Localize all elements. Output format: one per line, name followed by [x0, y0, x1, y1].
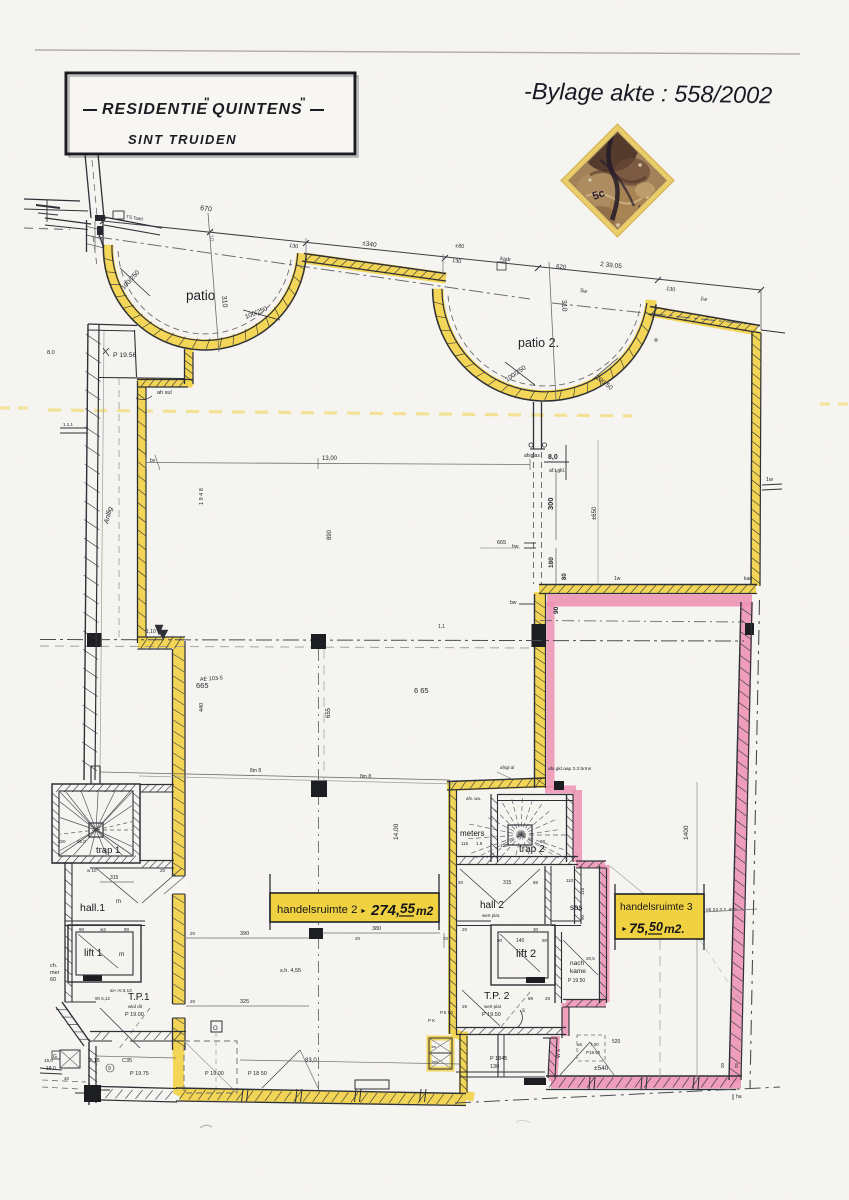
svg-text:18,0: 18,0	[46, 1066, 56, 1072]
svg-text:afs.gkl.aap 3.3 brms: afs.gkl.aap 3.3 brms	[548, 766, 592, 772]
svg-text:110: 110	[566, 878, 574, 883]
svg-text:nach: nach	[570, 960, 584, 967]
svg-text:P 19.00: P 19.00	[125, 1012, 144, 1018]
svg-text:P 19.56: P 19.56	[113, 352, 137, 359]
svg-text:88: 88	[533, 880, 539, 885]
svg-text:bw: bw	[510, 600, 517, 606]
svg-text:ch.: ch.	[50, 963, 58, 969]
svg-text:hall 2: hall 2	[480, 900, 504, 911]
svg-text:670: 670	[200, 205, 213, 213]
svg-text:": "	[204, 95, 210, 109]
svg-text:QUINTENS: QUINTENS	[212, 101, 303, 118]
svg-text:P 19.75: P 19.75	[130, 1071, 149, 1077]
svg-text:": "	[300, 95, 306, 109]
svg-text:8,0: 8,0	[548, 454, 558, 461]
svg-text:50: 50	[649, 920, 663, 934]
svg-text:75,: 75,	[629, 920, 648, 936]
svg-text:110: 110	[580, 887, 585, 895]
svg-text:8.0: 8.0	[47, 350, 55, 356]
svg-text:P 19.00: P 19.00	[205, 1071, 224, 1077]
svg-text:6 65: 6 65	[414, 686, 429, 695]
svg-text:655: 655	[326, 707, 332, 718]
svg-text:trap 1: trap 1	[96, 845, 120, 856]
svg-text:1w: 1w	[614, 576, 621, 582]
svg-text:1w: 1w	[431, 1044, 436, 1049]
svg-text:180: 180	[548, 557, 555, 568]
svg-text:300: 300	[546, 497, 555, 510]
svg-text:at+ At 5,13: at+ At 5,13	[110, 988, 132, 993]
svg-text:380: 380	[372, 926, 381, 932]
svg-text:handelsruimte 3: handelsruimte 3	[620, 902, 693, 913]
svg-text:14,00: 14,00	[393, 823, 400, 840]
svg-text:310: 310	[560, 300, 568, 312]
svg-text:mer: mer	[50, 970, 60, 976]
svg-text:115: 115	[461, 841, 469, 846]
svg-text:T.P.1: T.P.1	[128, 992, 150, 1003]
svg-text:19,0: 19,0	[44, 1058, 53, 1063]
svg-text:1.5: 1.5	[476, 841, 483, 846]
svg-text:O: O	[213, 1026, 218, 1032]
svg-text:SINT TRUIDEN: SINT TRUIDEN	[128, 132, 237, 147]
svg-text:20: 20	[190, 999, 196, 1004]
svg-text:d2.0: d2.0	[77, 839, 86, 844]
svg-text:P 19.50: P 19.50	[482, 1012, 501, 1018]
svg-text:bw: bw	[512, 544, 519, 550]
svg-text:±540: ±540	[594, 1065, 609, 1072]
svg-text:1,10: 1,10	[146, 629, 156, 635]
svg-text:325: 325	[240, 999, 249, 1005]
svg-text:89: 89	[528, 996, 534, 1001]
svg-text:40: 40	[64, 1076, 70, 1081]
svg-text:af.t.gkl.: af.t.gkl.	[549, 468, 565, 474]
svg-text:T.P. 2: T.P. 2	[484, 990, 510, 1002]
svg-text:8m 8: 8m 8	[250, 768, 261, 774]
svg-text:20,5: 20,5	[586, 956, 595, 961]
svg-text:890: 890	[327, 529, 333, 540]
svg-text:90: 90	[124, 927, 130, 932]
svg-text:G: G	[53, 1054, 57, 1060]
svg-text:80: 80	[562, 573, 568, 580]
svg-text:38: 38	[540, 839, 546, 844]
svg-text:20: 20	[355, 936, 361, 941]
svg-text:meters: meters	[460, 829, 484, 838]
svg-text:C35: C35	[122, 1058, 132, 1064]
svg-text:665: 665	[497, 540, 506, 546]
svg-text:20: 20	[462, 927, 468, 932]
svg-text:90: 90	[497, 938, 503, 943]
svg-text:310: 310	[220, 296, 228, 308]
svg-text:1w: 1w	[700, 296, 708, 303]
svg-text:315: 315	[110, 875, 119, 881]
svg-text:90: 90	[542, 938, 548, 943]
svg-text:ha: ha	[736, 1094, 742, 1100]
svg-text:handelsruimte 2: handelsruimte 2	[277, 904, 357, 916]
svg-text:20: 20	[458, 880, 464, 885]
svg-text:520: 520	[612, 1039, 621, 1045]
svg-text:P K: P K	[428, 1018, 435, 1023]
svg-text:P19.50: P19.50	[586, 1050, 601, 1055]
svg-text:1 9 4 8: 1 9 4 8	[199, 488, 205, 505]
svg-text:afsglas: afsglas	[524, 453, 540, 459]
svg-text:trap 2: trap 2	[519, 844, 545, 855]
svg-text:►: ►	[360, 908, 367, 915]
svg-text:ah sul: ah sul	[157, 390, 172, 396]
svg-text:620: 620	[556, 264, 567, 271]
svg-text:1w5: 1w5	[431, 1059, 439, 1064]
svg-text:wkd dit: wkd dit	[128, 1004, 143, 1009]
svg-text:274,: 274,	[370, 902, 400, 919]
svg-text:kame: kame	[570, 968, 586, 975]
svg-text:440: 440	[199, 703, 205, 712]
svg-text:8m 8: 8m 8	[360, 774, 371, 780]
svg-text:9: 9	[108, 1066, 111, 1072]
svg-text:afsgl al: afsgl al	[500, 765, 514, 770]
svg-text:±650: ±650	[592, 506, 598, 520]
svg-text:hall.1: hall.1	[80, 902, 105, 914]
svg-text:lift 1: lift 1	[84, 948, 103, 959]
svg-text:P.K 50: P.K 50	[440, 1010, 453, 1015]
svg-text:-Bylage akte : 558/2002: -Bylage akte : 558/2002	[524, 78, 773, 108]
svg-text:315: 315	[503, 880, 512, 886]
svg-text:3,10: 3,10	[207, 230, 214, 243]
svg-text:1w: 1w	[766, 477, 773, 483]
svg-text:90: 90	[553, 606, 560, 614]
svg-text:P 18 50: P 18 50	[248, 1071, 267, 1077]
svg-text:m: m	[119, 951, 124, 958]
svg-text:90: 90	[79, 927, 85, 932]
svg-text:9h 5,12: 9h 5,12	[95, 996, 111, 1001]
svg-text:20: 20	[190, 931, 196, 936]
svg-text:1.1.1: 1.1.1	[63, 422, 74, 427]
svg-text:W 5: W 5	[556, 1049, 562, 1058]
svg-text:m2.: m2.	[664, 922, 685, 936]
svg-text:patio: patio	[186, 288, 215, 303]
svg-text:lift 2: lift 2	[516, 948, 536, 960]
svg-text:13,00: 13,00	[322, 456, 338, 462]
svg-text:30: 30	[533, 927, 539, 932]
svg-text:wert plat.: wert plat.	[482, 913, 500, 918]
svg-text:20: 20	[720, 1062, 725, 1068]
svg-text:120: 120	[500, 843, 508, 848]
svg-text:±5: ±5	[577, 1042, 582, 1047]
svg-text:s.h. 4,55: s.h. 4,55	[280, 968, 301, 974]
svg-text:wert plat: wert plat	[484, 1004, 502, 1009]
svg-text:w3: w3	[100, 927, 106, 932]
svg-text:RESIDENTIE: RESIDENTIE	[102, 101, 208, 118]
svg-text:140: 140	[516, 938, 525, 944]
svg-text:2,15: 2,15	[89, 1058, 100, 1064]
svg-text:m: m	[116, 899, 121, 905]
svg-text:kad: kad	[744, 576, 752, 582]
svg-text:130: 130	[289, 243, 299, 250]
svg-text:1,1: 1,1	[438, 624, 445, 630]
svg-text:P 19.50: P 19.50	[568, 978, 585, 984]
svg-text:29: 29	[462, 1004, 468, 1009]
svg-text:390: 390	[240, 931, 249, 937]
svg-text:60: 60	[50, 977, 56, 983]
svg-text:w 10: w 10	[87, 868, 97, 873]
svg-text:P 1845: P 1845	[490, 1056, 507, 1062]
svg-text:afv. wa.: afv. wa.	[466, 796, 481, 801]
svg-text:7.00: 7.00	[590, 1042, 599, 1047]
svg-text:130: 130	[490, 1064, 499, 1070]
svg-text:130: 130	[452, 258, 462, 265]
svg-text:90: 90	[580, 914, 585, 920]
svg-text:20: 20	[160, 868, 166, 873]
svg-text:55: 55	[400, 901, 416, 916]
svg-text:►: ►	[621, 926, 628, 933]
svg-text:bv: bv	[150, 458, 156, 464]
svg-text:5w: 5w	[580, 288, 588, 295]
svg-text:29: 29	[545, 996, 551, 1001]
svg-text:d20: d20	[58, 839, 66, 844]
svg-text:25: 25	[734, 1062, 739, 1068]
svg-text:±80: ±80	[455, 243, 465, 250]
svg-text:1400: 1400	[683, 825, 690, 840]
svg-text:m2: m2	[416, 904, 434, 918]
svg-text:s: s	[522, 1008, 525, 1014]
